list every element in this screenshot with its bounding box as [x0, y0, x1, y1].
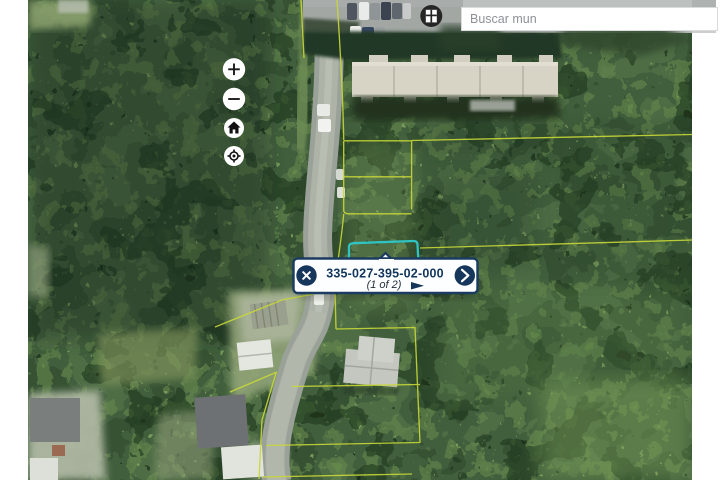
svg-text:(1 of 2): (1 of 2) — [367, 279, 402, 291]
svg-text:Buscar mun: Buscar mun — [470, 12, 537, 26]
